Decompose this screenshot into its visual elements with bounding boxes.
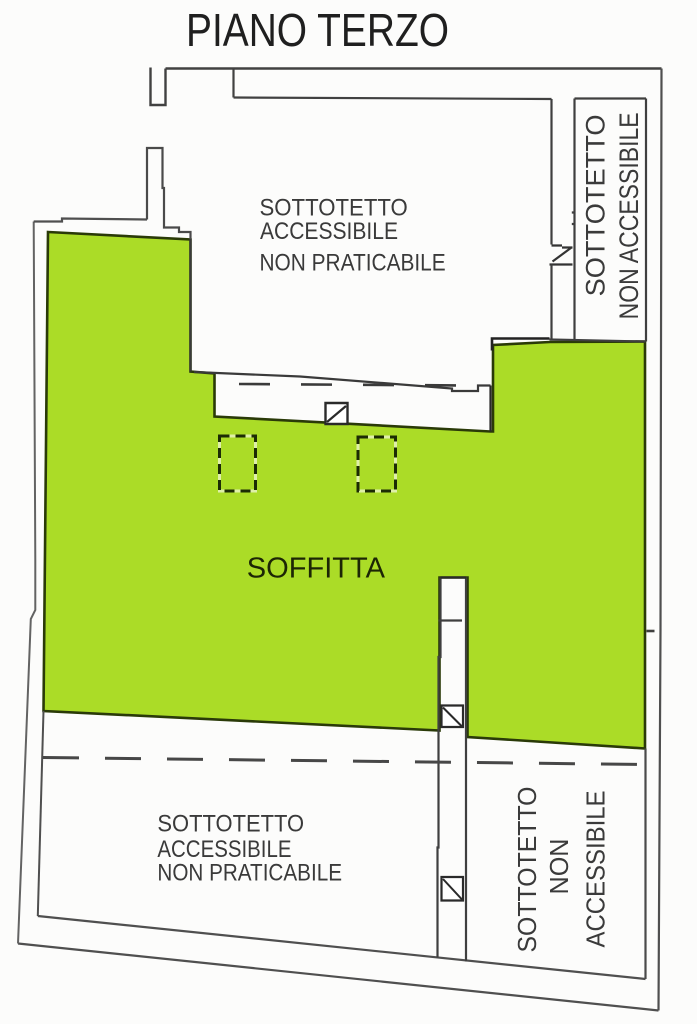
- svg-text:SOFFITTA: SOFFITTA: [247, 552, 386, 584]
- svg-text:ACCESSIBILE: ACCESSIBILE: [260, 218, 398, 245]
- svg-text:NON ACCESSIBILE: NON ACCESSIBILE: [614, 112, 644, 319]
- svg-text:NON: NON: [544, 839, 574, 895]
- svg-text:NON PRATICABILE: NON PRATICABILE: [157, 860, 342, 887]
- svg-text:SOTTOTETTO: SOTTOTETTO: [580, 114, 610, 296]
- svg-text:NON PRATICABILE: NON PRATICABILE: [260, 250, 446, 277]
- svg-text:SOTTOTETTO: SOTTOTETTO: [157, 811, 304, 838]
- svg-text:ACCESSIBILE: ACCESSIBILE: [580, 791, 610, 948]
- svg-text:PIANO TERZO: PIANO TERZO: [186, 4, 449, 56]
- svg-text:SOTTOTETTO: SOTTOTETTO: [512, 787, 542, 953]
